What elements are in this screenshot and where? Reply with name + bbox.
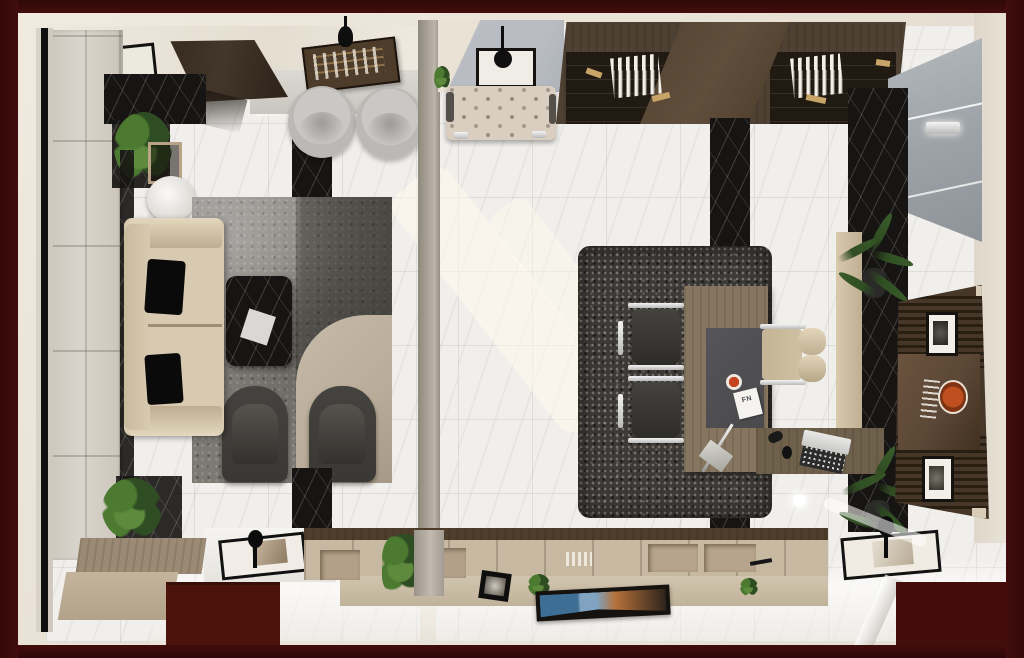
- picture-frame-bottom: [922, 456, 954, 502]
- chair-arm: [628, 376, 684, 381]
- black-photo-frame: [478, 570, 512, 602]
- book-row: [790, 53, 844, 98]
- sofa-backrest: [124, 224, 150, 430]
- book-row: [610, 54, 662, 99]
- slatted-media-wall: [888, 280, 992, 524]
- credenza-inset: [320, 550, 360, 580]
- tray-paper: [872, 538, 914, 567]
- display-tray: [840, 530, 941, 580]
- tufted-bench: [446, 86, 556, 140]
- wall-sconce: [926, 122, 960, 134]
- desk-mouse: [782, 446, 792, 459]
- executive-chair: [758, 324, 828, 386]
- credenza-ball-plant: [740, 578, 758, 596]
- painting-art: [540, 589, 667, 618]
- pendant-shade: [494, 50, 512, 68]
- chair-base: [618, 321, 623, 355]
- chair-back-roll: [798, 355, 826, 382]
- beige-sofa: [124, 218, 224, 436]
- border-top: [0, 0, 1024, 13]
- border-right: [1006, 0, 1024, 658]
- round-lounge-chair: [356, 87, 424, 159]
- border-bottom: [0, 645, 1024, 658]
- document-label: FN: [741, 395, 753, 404]
- palm-leaf: [868, 248, 915, 269]
- picture-frame-top: [926, 312, 958, 356]
- window-mullion: [36, 28, 53, 632]
- divider-wall-foot: [414, 530, 444, 596]
- render-canvas: FN: [0, 0, 1024, 658]
- office-runner-top: [710, 118, 750, 254]
- chair-seat-shadow: [368, 113, 412, 149]
- chair-body: [632, 309, 680, 365]
- frame-photo: [484, 576, 506, 597]
- chair-seat: [762, 329, 802, 380]
- wood-bench-front: [58, 572, 178, 620]
- bench-side-right: [549, 94, 556, 124]
- coffee-table-paper: [240, 308, 276, 345]
- accent-armchair: [222, 386, 288, 482]
- floor-plant: [102, 478, 162, 540]
- tray-mic-stem: [253, 546, 257, 568]
- black-cushion: [144, 259, 186, 316]
- bench-side-left: [446, 92, 454, 122]
- armchair-seat: [319, 404, 365, 464]
- sofa-seat-split: [148, 324, 222, 327]
- border-left: [0, 0, 18, 658]
- tray-mic-stem: [884, 534, 888, 558]
- tray-lamp-stem: [344, 16, 347, 30]
- chair-body: [632, 382, 680, 438]
- credenza-books: [566, 552, 592, 566]
- light-reflection: [793, 494, 806, 507]
- conference-chair: [626, 376, 686, 446]
- chair-base: [618, 394, 623, 428]
- frame-art: [933, 321, 948, 345]
- shelf-center-panel: [640, 22, 790, 124]
- chair-arm: [760, 380, 806, 385]
- round-side-table: [147, 176, 195, 222]
- chair-seat-shadow: [300, 112, 344, 148]
- chair-arm: [628, 303, 684, 308]
- round-lounge-chair: [288, 86, 356, 158]
- frame-art: [929, 466, 944, 490]
- credenza-inset: [704, 544, 756, 572]
- chair-arm: [628, 365, 684, 370]
- media-wall-gloss-panel: [898, 354, 980, 450]
- credenza-inset: [648, 544, 698, 572]
- chair-arm: [628, 438, 684, 443]
- bench-leg: [532, 131, 546, 138]
- coffee-cup: [726, 374, 742, 390]
- logo-plate: [940, 382, 966, 412]
- chair-back-roll: [798, 328, 826, 355]
- bench-leg: [454, 132, 468, 139]
- armchair-seat: [232, 404, 278, 464]
- black-cushion: [144, 353, 183, 405]
- wood-bench-top: [75, 538, 206, 574]
- black-marble-coffee-table: [226, 276, 292, 366]
- conference-chair: [626, 303, 686, 373]
- divider-wall: [418, 20, 440, 596]
